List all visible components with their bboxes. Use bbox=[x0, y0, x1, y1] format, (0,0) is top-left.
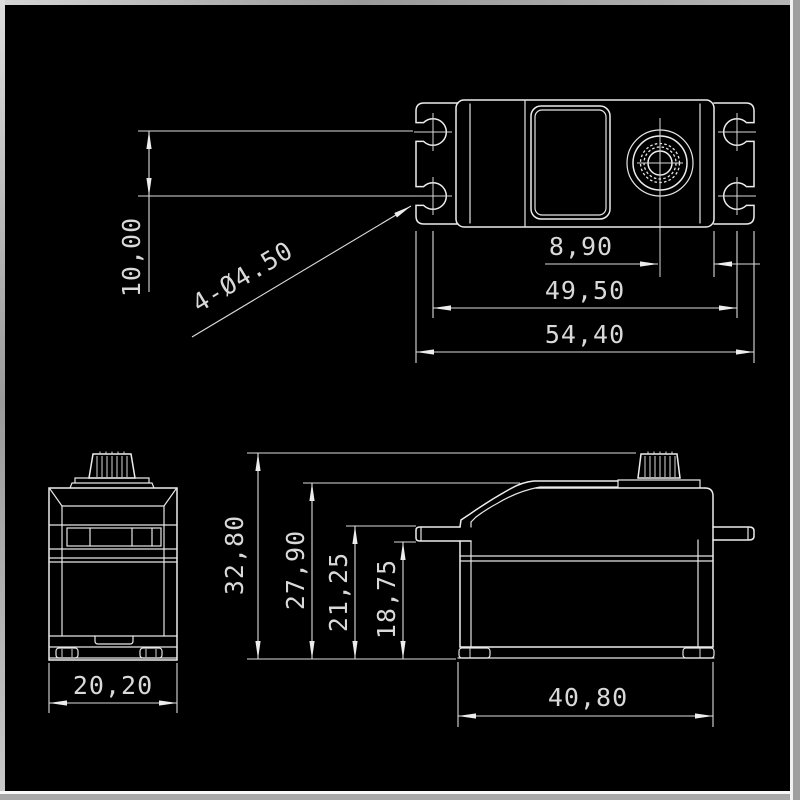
technical-drawing-canvas: 10,00 4-Ø4.50 8,90 49,50 54,40 bbox=[0, 0, 800, 800]
dim-body-width: 20,20 bbox=[73, 671, 153, 700]
dim-hole-col-spacing: 49,50 bbox=[545, 276, 625, 305]
frame-right-highlight bbox=[790, 0, 793, 800]
dim-case-height: 27,90 bbox=[281, 530, 310, 610]
dim-flange-bottom-height: 18,75 bbox=[372, 559, 401, 639]
frame-top bbox=[0, 0, 800, 5]
dim-overall-height: 32,80 bbox=[220, 515, 249, 595]
dim-shaft-to-edge: 8,90 bbox=[549, 232, 613, 261]
dim-hole-row-spacing: 10,00 bbox=[117, 217, 146, 297]
dim-flange-top-height: 21,25 bbox=[324, 552, 353, 632]
dim-body-length: 40,80 bbox=[548, 683, 628, 712]
dim-overall-width: 54,40 bbox=[545, 320, 625, 349]
frame-bottom-highlight bbox=[0, 791, 800, 794]
frame-bottom bbox=[0, 794, 800, 800]
drawing-stage: 10,00 4-Ø4.50 8,90 49,50 54,40 bbox=[0, 0, 800, 800]
frame-right bbox=[793, 0, 800, 800]
frame-left bbox=[0, 0, 5, 800]
